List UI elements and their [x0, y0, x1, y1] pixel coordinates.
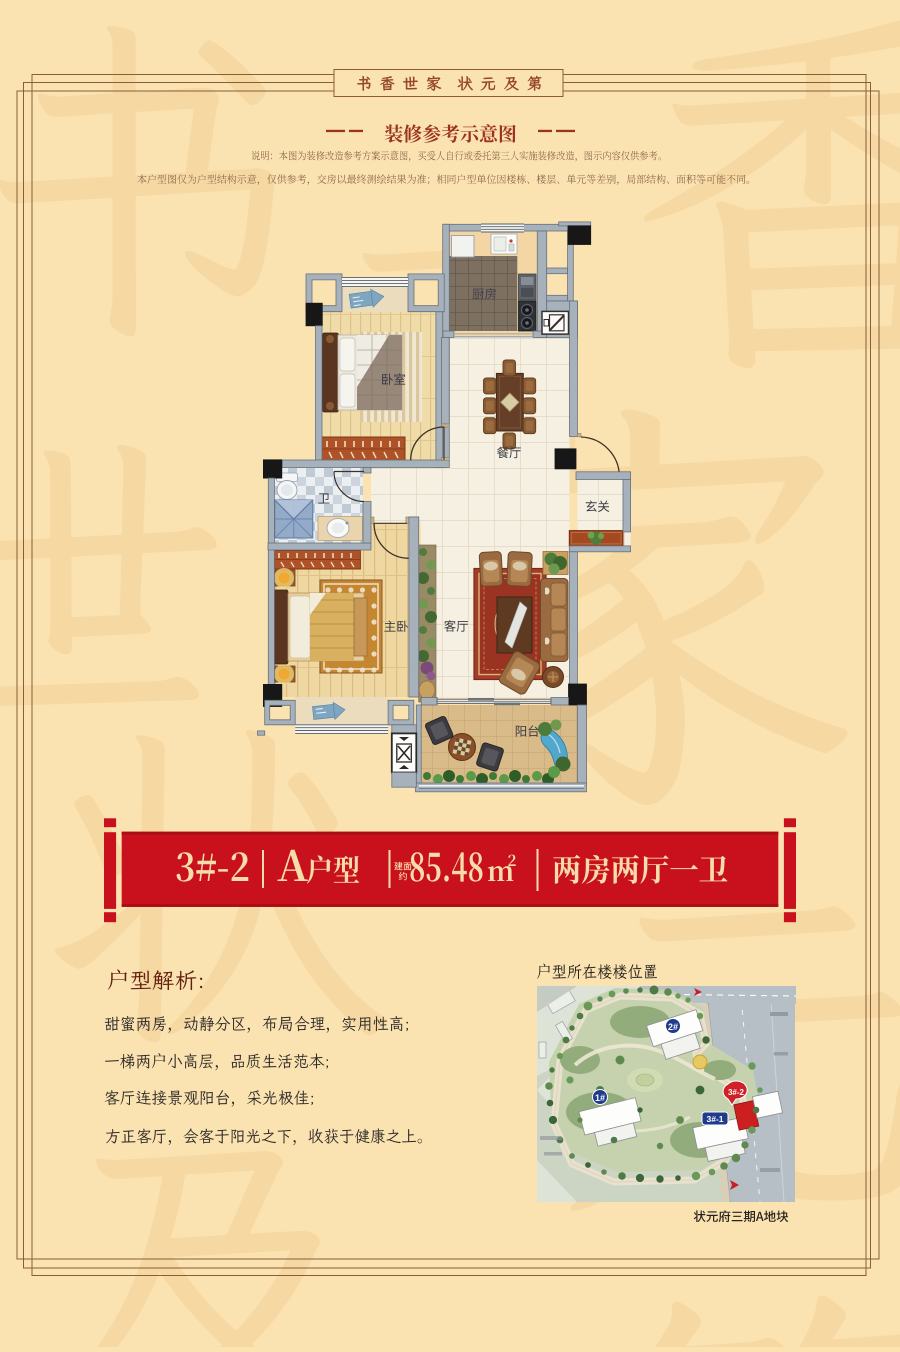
svg-text:3#-1: 3#-1	[706, 1114, 723, 1124]
svg-text:3#-2: 3#-2	[728, 1088, 745, 1097]
svg-text:2#: 2#	[668, 1022, 678, 1032]
svg-text:1#: 1#	[595, 1093, 605, 1103]
